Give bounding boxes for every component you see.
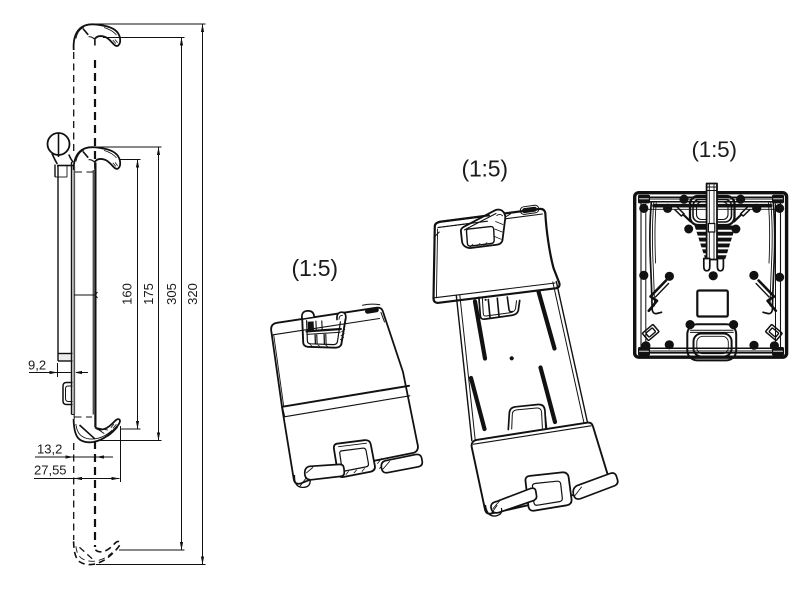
svg-text:13,2: 13,2 xyxy=(37,442,62,457)
svg-text:(1:5): (1:5) xyxy=(292,255,338,281)
svg-text:27,55: 27,55 xyxy=(34,463,67,478)
svg-text:305: 305 xyxy=(164,283,179,305)
svg-text:320: 320 xyxy=(185,283,200,305)
svg-text:160: 160 xyxy=(120,283,135,305)
svg-text:(1:5): (1:5) xyxy=(692,137,737,162)
svg-text:(1:5): (1:5) xyxy=(462,156,508,182)
svg-text:175: 175 xyxy=(141,283,156,305)
svg-text:9,2: 9,2 xyxy=(28,358,46,373)
